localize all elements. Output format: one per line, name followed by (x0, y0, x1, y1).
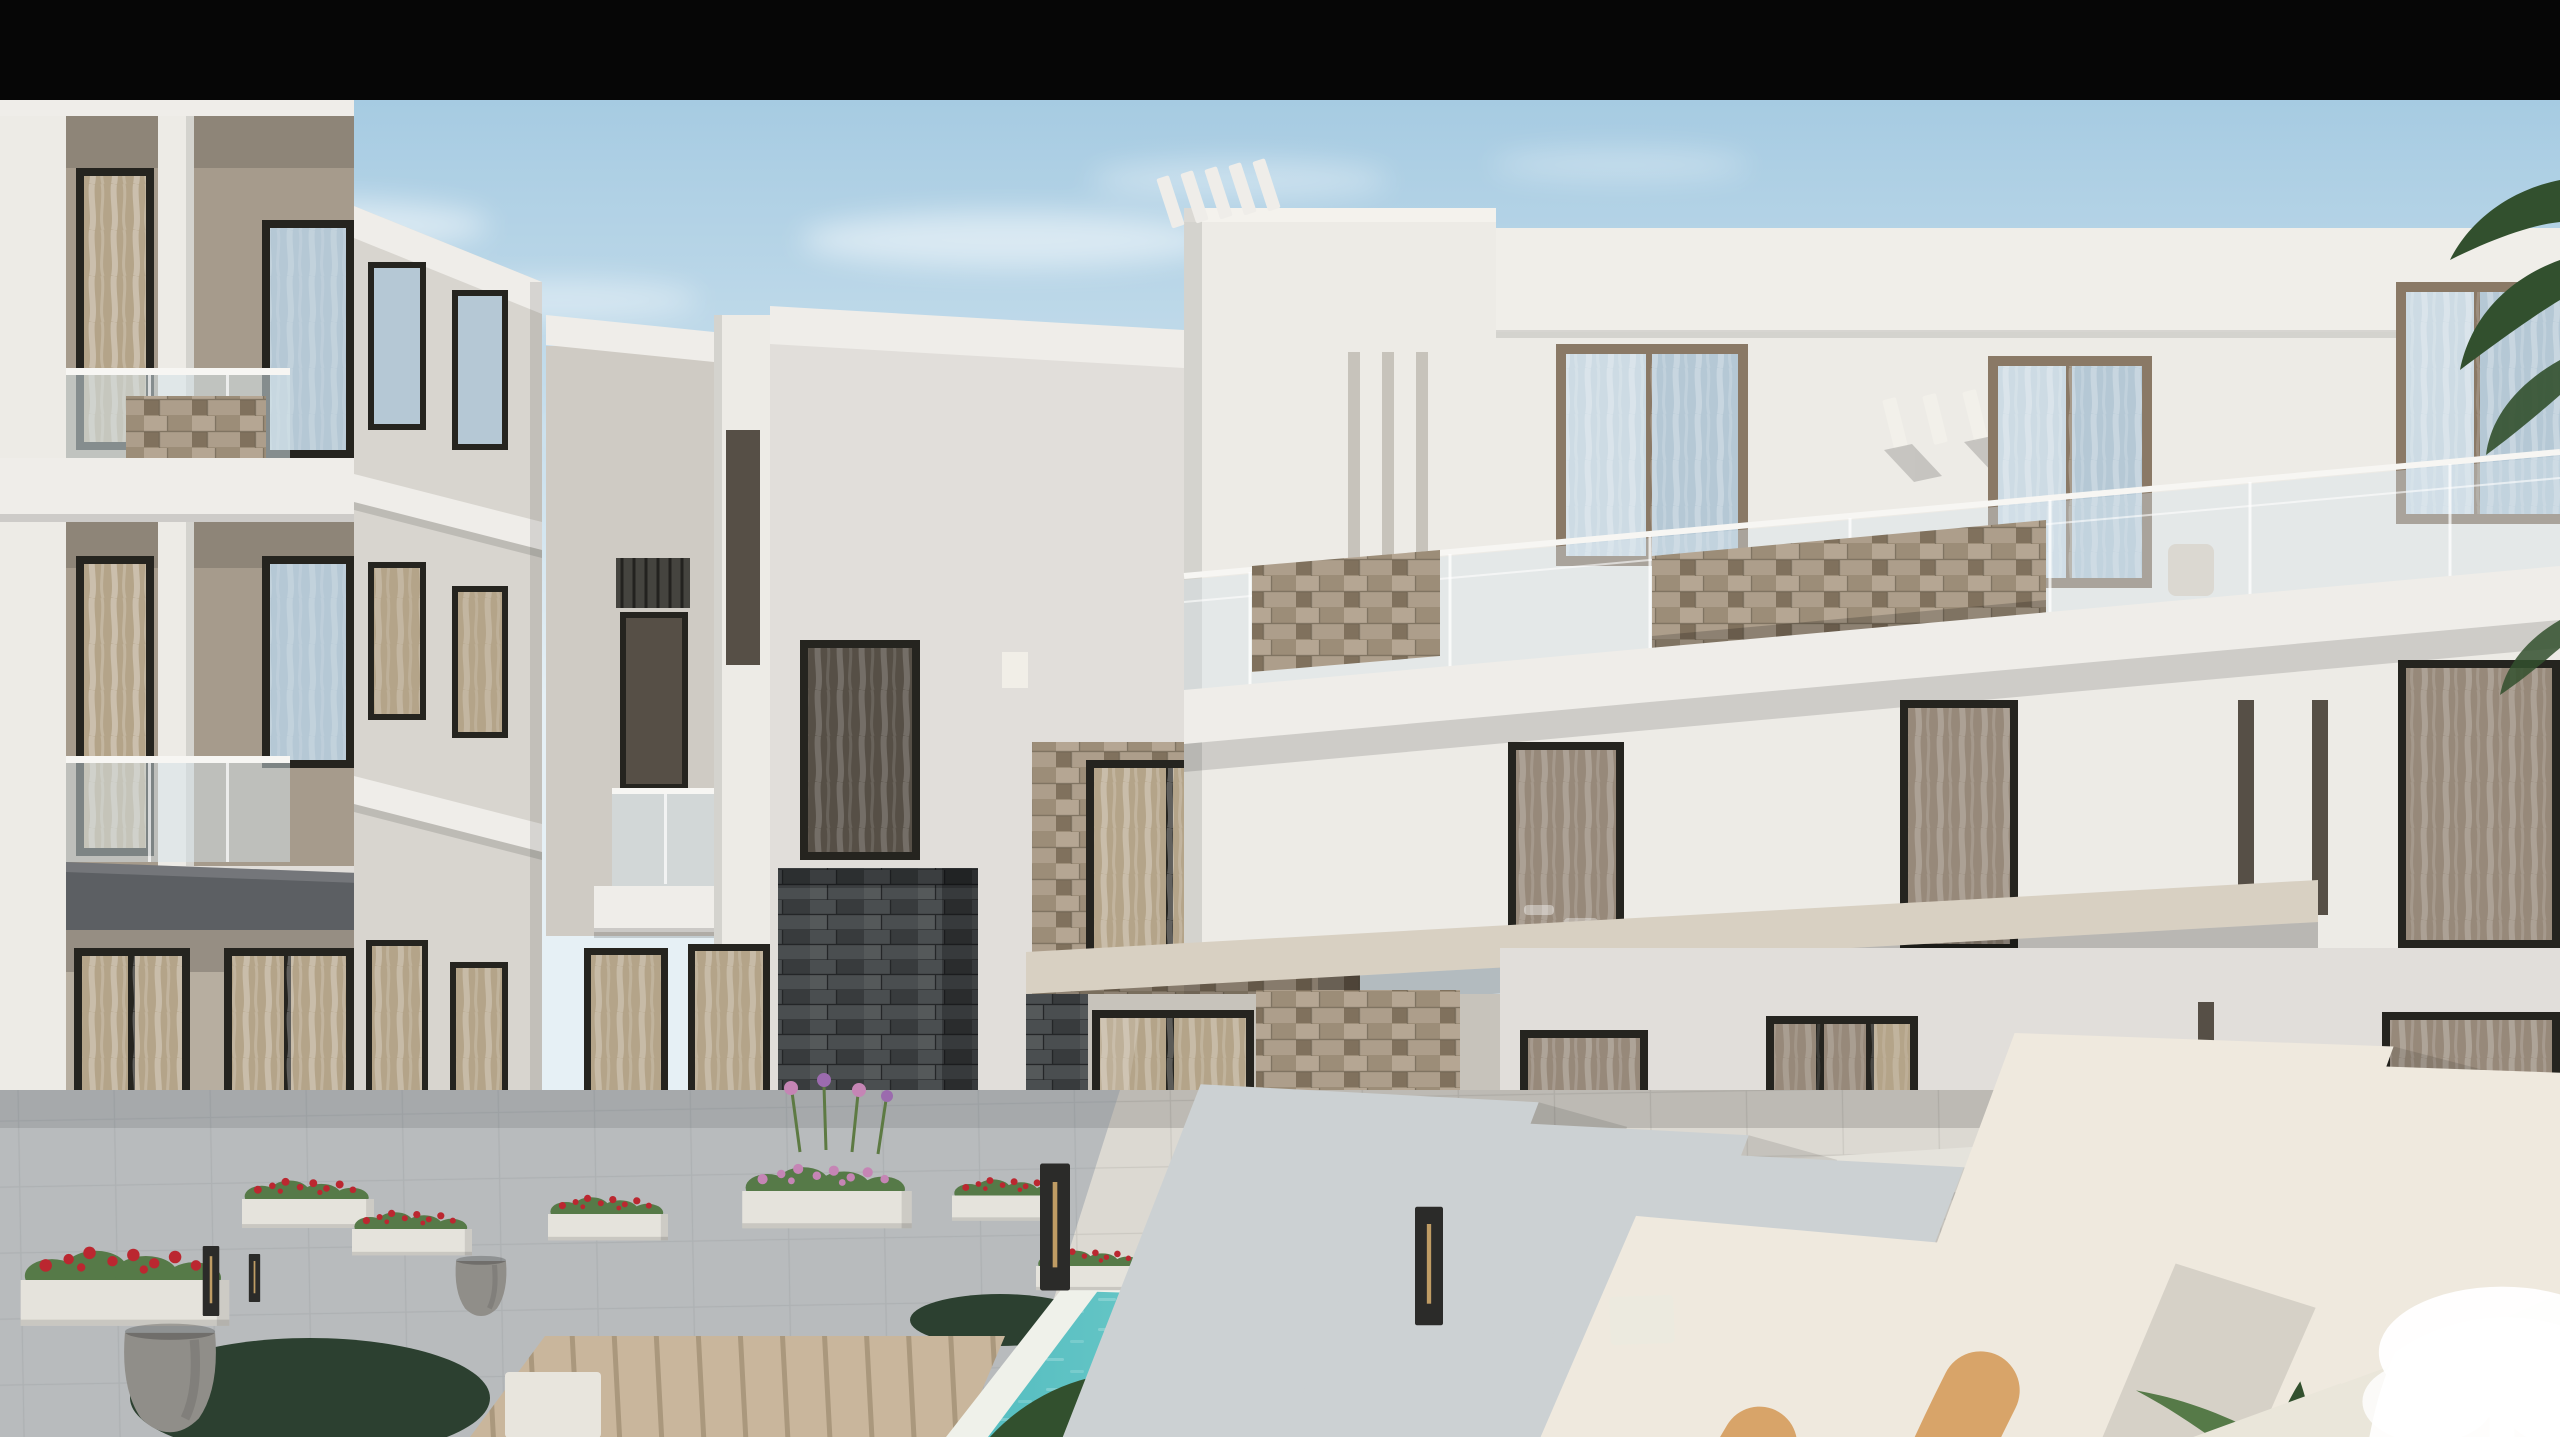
bollard-light (249, 1254, 260, 1302)
window (2398, 660, 2560, 948)
window (262, 556, 354, 768)
glass-balustrade (66, 756, 290, 862)
window (452, 586, 508, 738)
stone-parapet (1252, 550, 1440, 672)
bollard-light (203, 1246, 220, 1316)
window (620, 612, 688, 790)
window (800, 640, 920, 860)
narrow-tower (714, 315, 770, 1015)
render-image (0, 0, 2560, 1437)
window (452, 290, 508, 450)
letterbox-bar (0, 0, 2560, 100)
window (368, 562, 426, 720)
bollard-light (1040, 1164, 1070, 1291)
building-back-wing (546, 315, 770, 1015)
window (368, 262, 426, 430)
pilaster-slits (1348, 352, 1428, 572)
pergola-slats (616, 558, 690, 608)
bollard-light (1415, 1207, 1443, 1325)
